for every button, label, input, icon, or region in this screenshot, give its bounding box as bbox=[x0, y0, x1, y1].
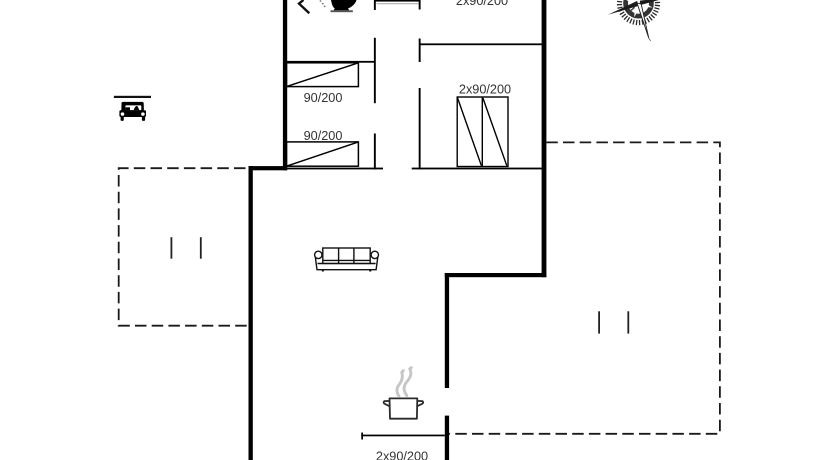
svg-text:90/200: 90/200 bbox=[304, 129, 343, 143]
svg-text:90/200: 90/200 bbox=[304, 91, 343, 105]
svg-text:2x90/200: 2x90/200 bbox=[376, 449, 428, 460]
svg-text:2x90/200: 2x90/200 bbox=[456, 0, 508, 8]
svg-text:2x90/200: 2x90/200 bbox=[459, 83, 511, 97]
